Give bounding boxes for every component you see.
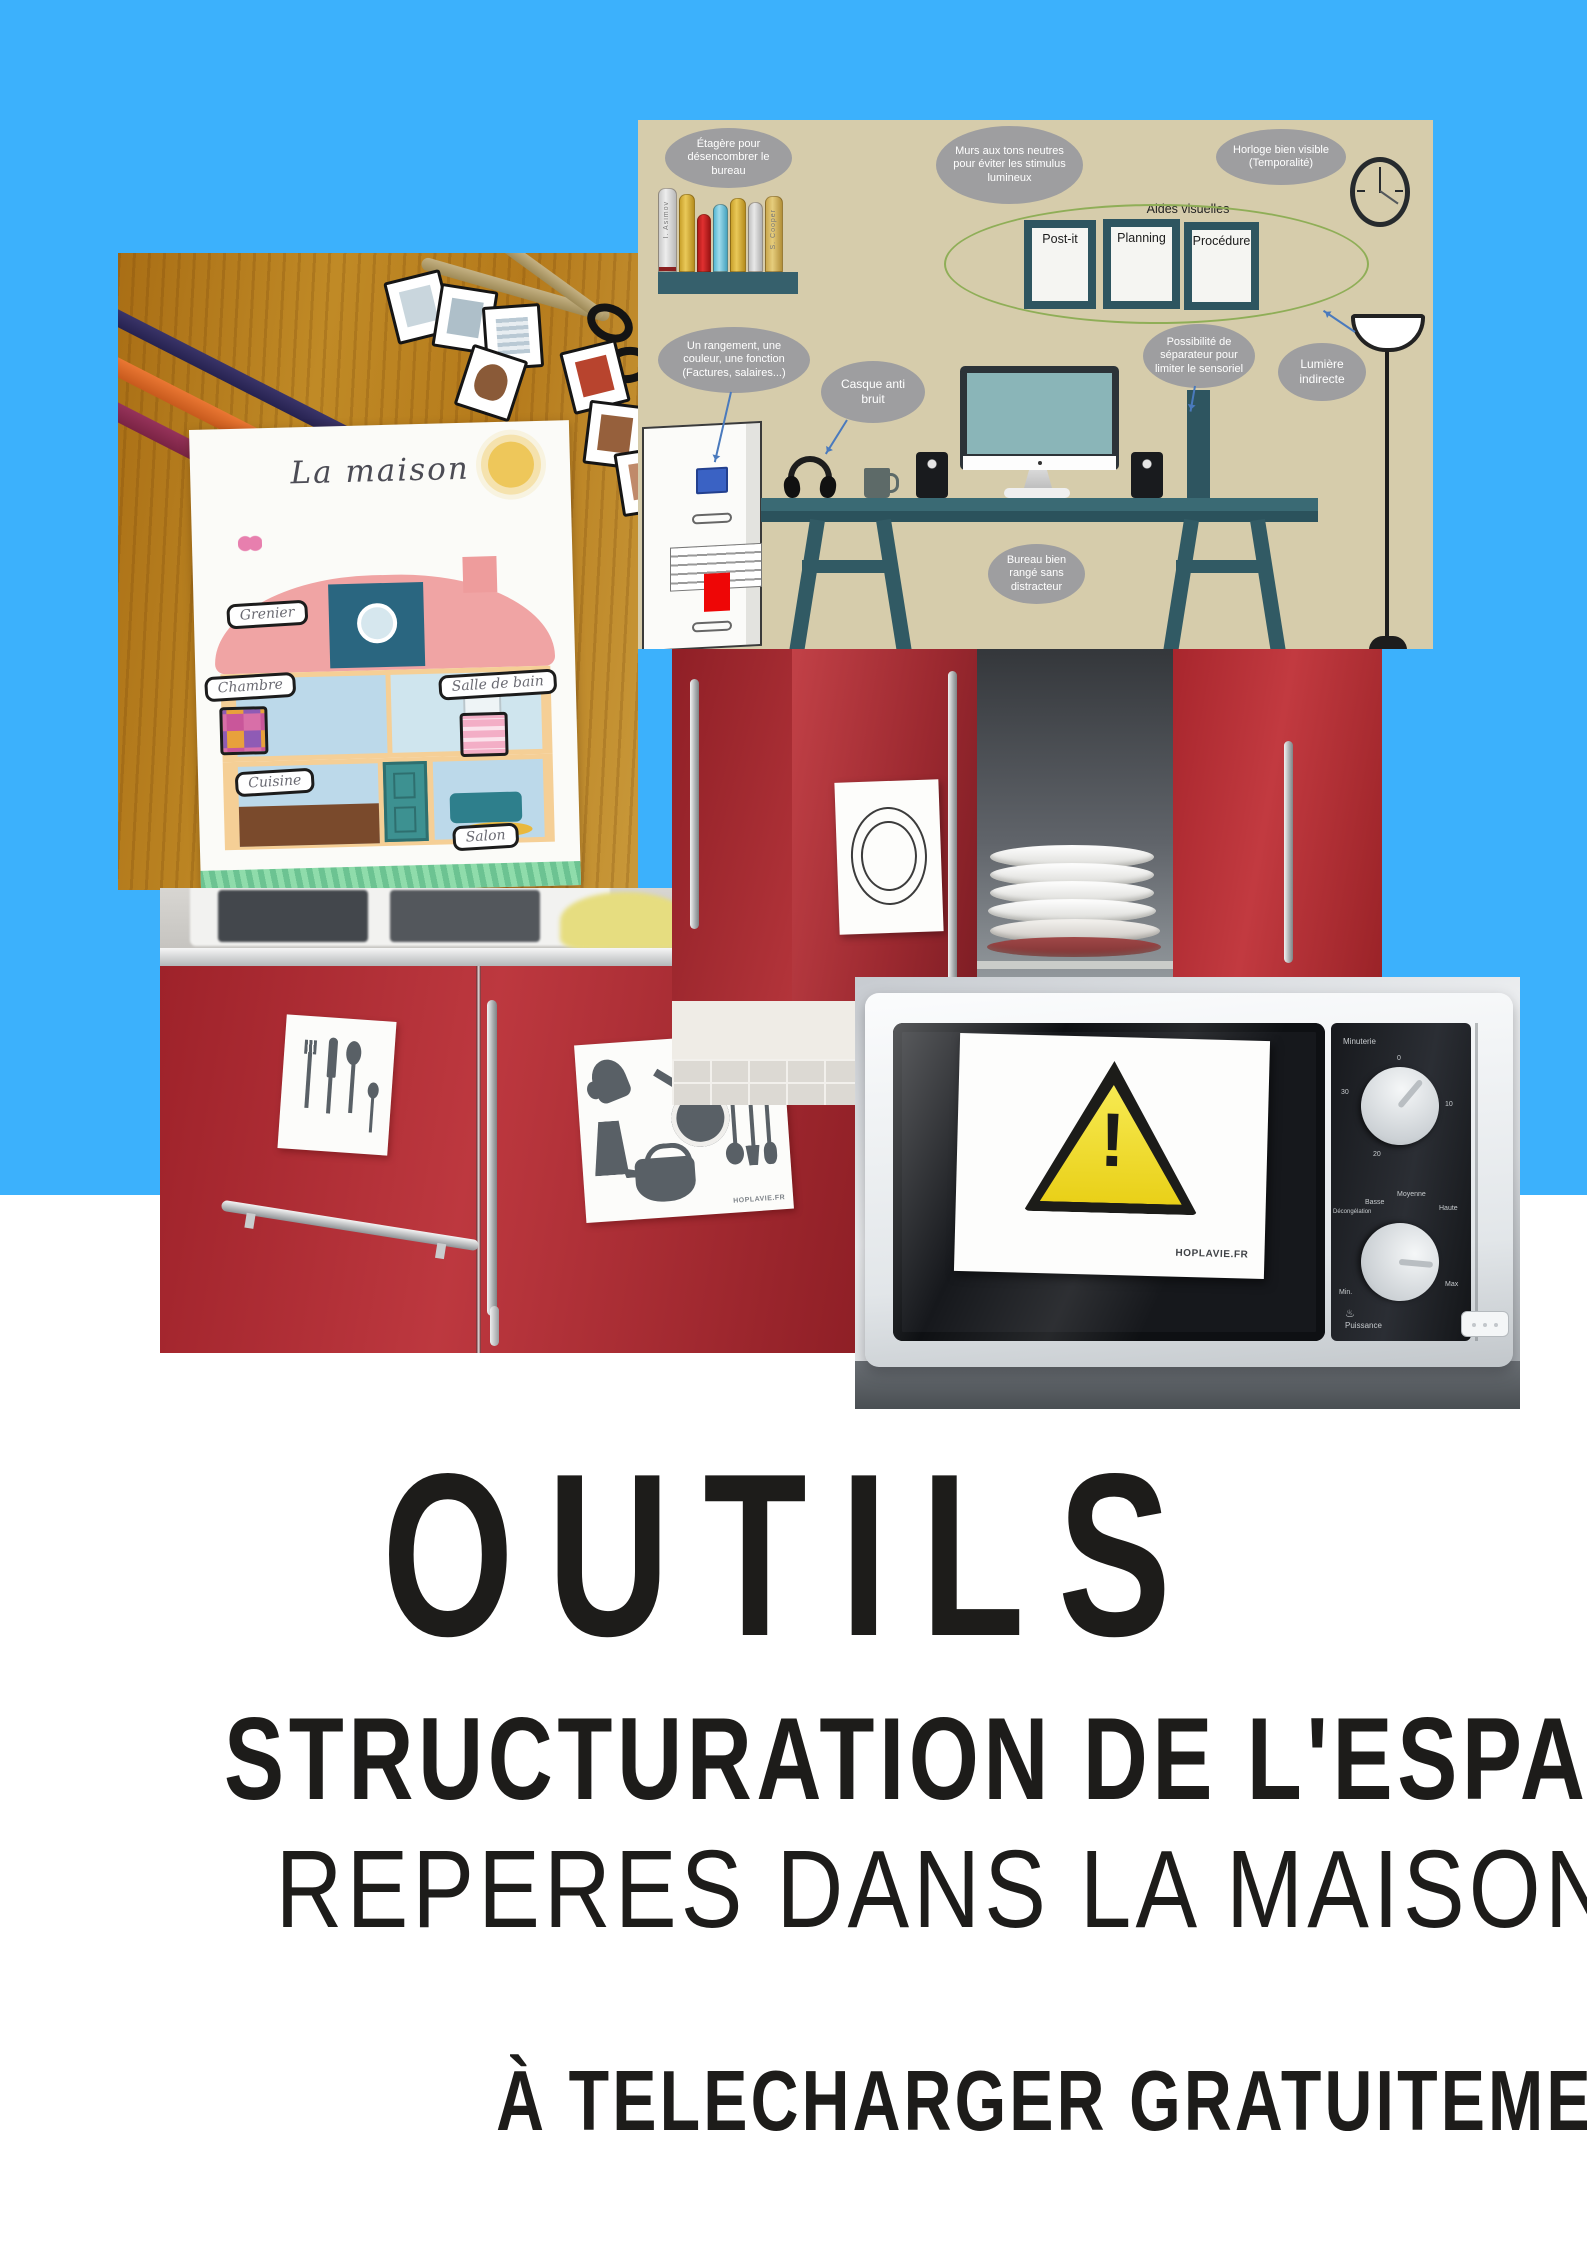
cabinet-handle [1284,741,1293,963]
file-cabinet [642,421,762,649]
ladle-bowl-icon [725,1142,744,1165]
poster-subtitle-2-text: REPERES DANS LA MAISON [276,1826,1587,1953]
exclamation-icon: ! [1024,1095,1200,1187]
mug-icon [864,468,890,498]
butterfly-icon [238,534,262,553]
cabinet-handle [948,671,957,1001]
timer-tick: 30 [1341,1089,1349,1096]
poster-subtitle-2: REPERES DANS LA MAISON [0,1826,1587,1953]
bubble-storage: Un rangement, une couleur, une fonction … [658,327,810,393]
timer-knob[interactable] [1345,1051,1455,1161]
book-spine [713,204,728,272]
bubble-separator: Possibilité de séparateur pour limiter l… [1143,324,1255,388]
bubble-desk: Bureau bien rangé sans distracteur [988,544,1085,604]
teaspoon-icon [369,1096,375,1132]
timer-tick: 0 [1397,1055,1401,1062]
microwave-window [390,890,540,942]
photo-house-worksheet: La maison [118,253,638,890]
kitchen-counter [239,803,380,847]
house-illustration: Grenier Chambre Salle de bain Cuisine Sa… [208,570,565,859]
fork-icon [304,1052,312,1108]
cabinet-shelf [977,961,1173,969]
steam-icon: ♨ [1345,1307,1355,1320]
book-spine: S. Cooper [765,196,783,272]
timer-label: Minuterie [1343,1037,1376,1046]
desk-leg [789,519,824,649]
desk-leg [1163,519,1198,649]
desk-leg [876,519,911,649]
book-spine [730,198,746,272]
annotation-arrow [825,419,848,454]
room-label-grenier: Grenier [226,600,308,630]
room-label-salon: Salon [452,822,519,851]
bubble-clock: Horloge bien visible (Temporalité) [1216,129,1346,185]
workspace-diagram-illustration: Étagère pour désencombrer le bureau Murs… [638,120,1433,649]
round-window [357,603,398,644]
poster-title: OUTILS [0,1422,1587,1689]
panel-label: Procédure [1192,234,1251,248]
power-level-label: Décongélation [1333,1209,1371,1215]
monitor-base [1004,488,1070,498]
book-spine-text: S. Cooper [770,209,777,250]
power-level-label: Basse [1365,1199,1384,1206]
card-brand-text: HOPLAVIE.FR [733,1194,785,1205]
bubble-light: Lumière indirecte [1278,343,1366,401]
wall-clock-icon [1350,157,1410,227]
cabinet-handle [690,679,699,929]
panel-procedure: Procédure [1184,222,1259,310]
power-level-label: Moyenne [1397,1191,1426,1198]
poster-subtitle-1: STRUCTURATION DE L'ESPACE [0,1691,1587,1826]
yellow-bowl [560,892,690,950]
panel-label: Planning [1111,231,1172,245]
power-level-label: Max [1445,1281,1458,1288]
floor-lamp-pole [1385,352,1389,638]
knife-icon [327,1037,339,1078]
bookshelf-books: I. Asimov S. Cooper [658,188,798,272]
bookshelf-board [658,272,798,294]
poster-footer: À TELECHARGER GRATUITEMENT [0,2053,1587,2151]
spoon-icon [348,1061,356,1113]
grass [201,861,581,890]
headphone-earcup [819,475,838,499]
floor-lamp-shade [1351,314,1425,352]
red-folder-icon [704,573,730,612]
speaker-icon [1131,452,1163,498]
panel-label: Post-it [1032,232,1088,246]
kettle-icon [634,1155,697,1203]
cabinet-handle [490,1306,499,1346]
power-level-label: Haute [1439,1205,1458,1212]
spatula-head-icon [745,1145,760,1166]
desk-leg-crossbar [1176,560,1260,573]
bubble-walls: Murs aux tons neutres pour éviter les st… [936,126,1083,204]
book-spine [679,194,695,272]
poster-footer-text: À TELECHARGER GRATUITEMENT [496,2053,1587,2151]
house-chimney [462,556,497,593]
monitor-stand [1024,470,1052,488]
microwave-window [218,890,368,942]
desk-edge [761,511,1318,522]
skimmer-head-icon [763,1142,778,1165]
cabinet-handle [487,1000,497,1316]
desk-top [761,498,1318,511]
attic-room [328,582,425,668]
panel-postit: Post-it [1024,220,1096,309]
plate-stack [990,845,1160,965]
cutlery-pictogram-card [277,1014,396,1155]
cabinet-door-closed [1173,649,1382,1001]
poster-title-text: OUTILS [382,1422,1204,1689]
book-spine [748,202,763,272]
card-brand-text: HOPLAVIE.FR [1175,1248,1248,1261]
knife-icon [326,1075,333,1113]
photo-microwave-warning: ! HOPLAVIE.FR Minuterie 0 10 20 30 Décon… [855,977,1520,1409]
blocks-picture-card [219,706,268,755]
drawer-handle [692,620,732,632]
power-label: Puissance [1345,1321,1382,1330]
desk-leg-crossbar [802,560,886,573]
warning-card: ! HOPLAVIE.FR [954,1033,1270,1279]
front-door [383,761,429,842]
background-microwave [190,888,610,946]
oven-mitt-icon [586,1054,633,1106]
speaker-icon [916,452,948,498]
book-spine: I. Asimov [658,188,677,272]
bubble-headset: Casque anti bruit [821,361,925,423]
dark-counter [855,1361,1520,1409]
sofa [450,791,523,823]
room-label-cuisine: Cuisine [235,768,316,798]
floor-lamp-base [1369,636,1407,649]
timer-tick: 20 [1373,1151,1381,1158]
book-spine-text: I. Asimov [663,201,670,238]
timer-tick: 10 [1445,1101,1453,1108]
panel-planning: Planning [1103,219,1180,309]
la-maison-worksheet: La maison [189,420,581,890]
poster-subtitle-1-text: STRUCTURATION DE L'ESPACE [224,1691,1587,1826]
towels-picture-card [459,712,508,757]
microwave-body: ! HOPLAVIE.FR Minuterie 0 10 20 30 Décon… [865,993,1513,1367]
computer-monitor [960,366,1119,470]
door-seam [1475,1023,1478,1341]
poster-canvas: La maison [0,0,1587,2245]
bubble-shelf: Étagère pour désencombrer le bureau [665,128,792,188]
desk-leg [1250,519,1285,649]
cabinet-door-divider [476,966,481,1353]
microwave-control-panel: Minuterie 0 10 20 30 Décongélation Basse… [1331,1023,1471,1341]
blue-folder-icon [696,467,728,495]
power-knob[interactable] [1358,1220,1443,1305]
power-level-label: Min. [1339,1289,1352,1296]
drawer-handle [692,512,732,524]
door-latch-button[interactable] [1461,1311,1509,1337]
grater-icon [591,1120,629,1176]
plate-pictogram-card [834,779,943,935]
book-spine [697,214,711,272]
